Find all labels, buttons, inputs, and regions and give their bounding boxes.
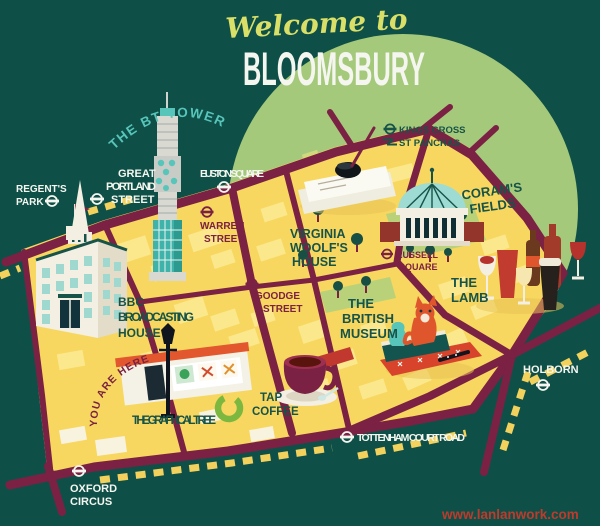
watermark: www.lanlanwork.com bbox=[441, 507, 579, 522]
station-label: KINGS CROSS bbox=[399, 125, 466, 136]
graphical-tree-label: THE GRAPHICAL TREE bbox=[132, 415, 216, 427]
station-label: OXFORD bbox=[70, 483, 117, 495]
bm-line3: MUSEUM bbox=[340, 326, 398, 341]
tap-line1: TAP bbox=[260, 392, 282, 404]
bbc-line3: HOUSE bbox=[118, 326, 161, 340]
bloomsbury-illustrated-map: REGENT'S PARK GREAT PORTLAND STREET EUST… bbox=[0, 0, 600, 526]
station-label: PORTLAND bbox=[106, 181, 156, 193]
station-label: STREET bbox=[111, 194, 155, 206]
bbc-line1: BBC bbox=[118, 295, 144, 309]
lamb-line2: LAMB bbox=[451, 290, 489, 305]
station-label: GOODGE bbox=[255, 291, 300, 302]
title-bloomsbury: BLOOMSBURY bbox=[243, 42, 425, 95]
station-label: WARREN bbox=[200, 221, 244, 232]
station-label: HOLBORN bbox=[523, 364, 579, 376]
tap-line2: COFFEE bbox=[252, 406, 299, 418]
station-label: RUSSELL bbox=[396, 250, 439, 260]
bm-line2: BRITISH bbox=[342, 311, 394, 326]
station-label: GREAT bbox=[118, 168, 156, 180]
station-tottenham-court-road: TOTTENHAM COURT ROAD bbox=[340, 432, 465, 444]
station-label: STREET bbox=[204, 234, 243, 245]
vw-line2: WOOLF'S bbox=[290, 241, 348, 255]
map-canvas: REGENT'S PARK GREAT PORTLAND STREET EUST… bbox=[0, 0, 600, 526]
station-label: TOTTENHAM COURT ROAD bbox=[357, 432, 465, 444]
station-label: STREET bbox=[263, 304, 302, 315]
lamb-line1: THE bbox=[451, 275, 477, 290]
station-label: ST PANCRAS bbox=[399, 138, 460, 149]
bm-line1: THE bbox=[348, 296, 374, 311]
station-label: PARK bbox=[16, 197, 44, 208]
station-label: REGENT'S bbox=[16, 184, 67, 195]
vw-line1: VIRGINIA bbox=[290, 227, 346, 241]
vw-line3: HOUSE bbox=[292, 255, 336, 269]
station-label: SQUARE bbox=[399, 262, 438, 272]
bbc-line2: BROADCASTING bbox=[118, 310, 194, 324]
station-label: CIRCUS bbox=[70, 496, 112, 508]
station-label: EUSTON SQUARE bbox=[200, 168, 264, 180]
